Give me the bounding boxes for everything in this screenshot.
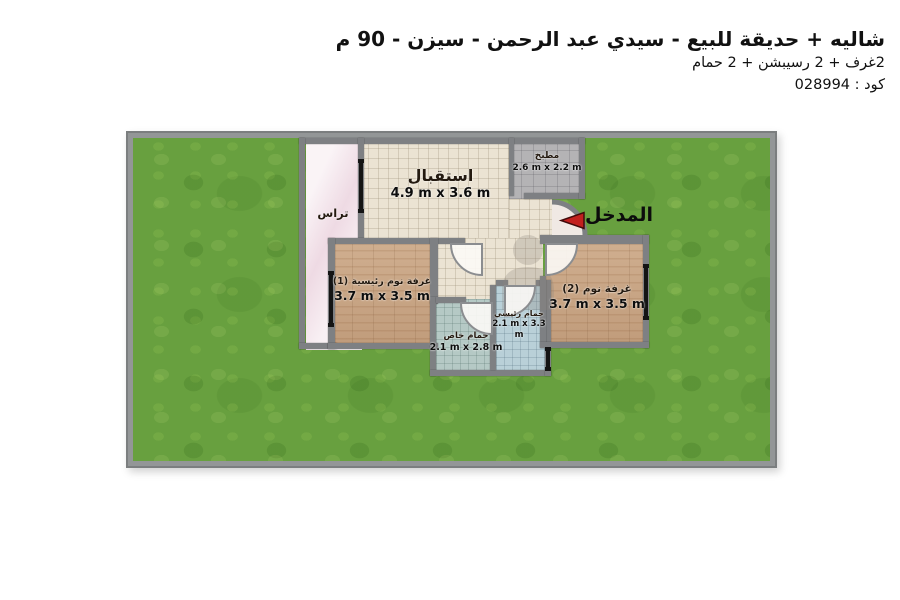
listing-specs: 2غرف + 2 رسيبشن + 2 حمام [15,53,885,74]
room-dims: 3.7 m x 3.5 m [545,296,649,312]
window [359,161,363,211]
wall [540,235,649,244]
wall [436,297,466,303]
room-name: غرفة نوم رئيسية (1) [333,276,431,287]
entrance-label: المدخل [585,204,665,226]
listing-title: شاليه + حديقة للبيع - سيدي عبد الرحمن - … [15,26,885,53]
room-name: استقبال [408,166,474,185]
room-label-reception: استقبال 4.9 m x 3.6 m [373,166,508,202]
floor-plan-garden: استقبال 4.9 m x 3.6 m مطبخ 2.6 m x 2.2 m… [133,138,770,461]
room-name: مطبخ [535,151,560,161]
room-name: تراس [317,206,348,220]
entrance-arrow-icon [561,213,584,229]
room-dims: 2.6 m x 2.2 m [509,162,585,175]
wall [299,138,305,349]
wall [540,342,649,348]
room-name: حمام رئيسي [494,309,544,318]
room-label-kitchen: مطبخ 2.6 m x 2.2 m [509,151,585,175]
wall [328,343,438,349]
room-name: غرفة نوم (2) [562,283,631,295]
entrance-floor [552,202,585,235]
wall [496,280,508,286]
room-label-bedroom-2: غرفة نوم (2) 3.7 m x 3.5 m [545,283,649,312]
wall [524,193,585,199]
wall [430,370,551,376]
room-dims: 2.1 m x 3.3 m [490,319,548,341]
room-dims: 2.1 m x 2.8 m [429,342,503,354]
entrance-curved-wall [552,202,585,235]
room-label-terrace: تراس [303,206,363,220]
room-name: حمام خاص [444,331,489,341]
room-label-master-bedroom: غرفة نوم رئيسية (1) 3.7 m x 3.5 m [331,275,433,304]
header: شاليه + حديقة للبيع - سيدي عبد الرحمن - … [15,26,885,96]
wall [328,238,465,244]
listing-code: كود : 028994 [15,74,885,96]
room-label-main-bathroom: حمام رئيسي 2.1 m x 3.3 m [490,309,548,341]
hallway [435,238,543,285]
room-dims: 3.7 m x 3.5 m [331,288,433,304]
listing-image: شاليه + حديقة للبيع - سيدي عبد الرحمن - … [0,0,900,600]
window [546,349,550,369]
wall [299,138,585,144]
room-dims: 4.9 m x 3.6 m [373,186,508,202]
